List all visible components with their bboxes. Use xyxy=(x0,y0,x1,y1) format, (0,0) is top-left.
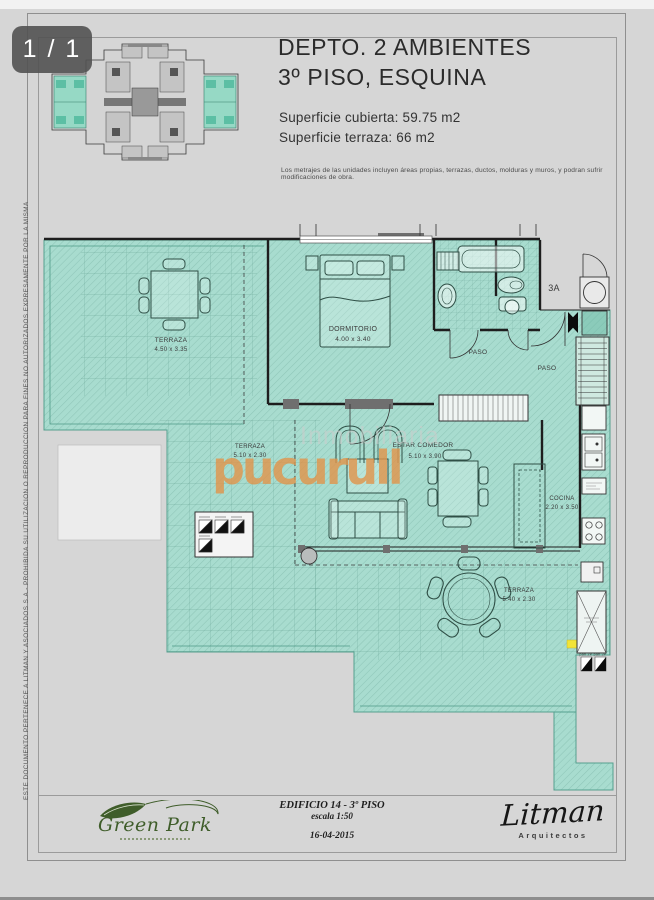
architect-signature: Litman xyxy=(500,793,605,833)
leaf-icon xyxy=(70,800,240,820)
room-label-estar-comedor: ESTAR COMEDOR xyxy=(393,442,454,449)
adjacent-slab xyxy=(58,445,161,540)
panel-marker-labels: pan 2P pan 3P xyxy=(580,653,607,657)
window-band xyxy=(300,236,432,243)
floor-plan-drawing: TERRAZA 4.50 x 3.35 DORMITORIO 4.00 x 3.… xyxy=(0,0,654,900)
room-dims-terraza-s: 5.40 x 2.30 xyxy=(503,597,536,603)
room-label-dormitorio: DORMITORIO xyxy=(329,326,378,333)
room-label-terraza-nw: TERRAZA xyxy=(155,337,188,344)
plan-sheet-title: EDIFICIO 14 - 3º PISO xyxy=(247,800,417,811)
unit-number-label: 3A xyxy=(548,283,560,293)
greenpark-tagline xyxy=(120,838,190,840)
room-label-paso-2: PASO xyxy=(538,365,557,372)
room-label-terraza-mid: TERRAZA xyxy=(235,444,265,450)
room-dims-terraza-nw: 4.50 x 3.35 xyxy=(155,347,188,353)
page-counter-badge: 1 / 1 xyxy=(12,26,92,73)
elevator xyxy=(580,277,609,308)
architect-block: Litman Arquitectos xyxy=(478,796,628,840)
greenpark-logo: Green Park xyxy=(70,800,240,840)
highlight-marker xyxy=(567,640,577,648)
floorplan-image-viewer[interactable]: DEPTO. 2 AMBIENTES 3º PISO, ESQUINA Supe… xyxy=(0,0,654,900)
room-dims-dormitorio: 4.00 x 3.40 xyxy=(335,336,371,343)
stairs xyxy=(576,337,609,405)
panel-legend xyxy=(195,512,253,557)
panel-markers xyxy=(581,657,606,671)
room-label-cocina: COCINA xyxy=(549,496,574,502)
closet-shelf xyxy=(439,395,528,421)
service-boxes xyxy=(577,562,606,653)
room-label-paso-1: PASO xyxy=(469,349,488,356)
room-label-terraza-s: TERRAZA xyxy=(504,588,534,594)
column xyxy=(301,548,317,564)
titleblock-center: EDIFICIO 14 - 3º PISO escala 1:50 16-04-… xyxy=(247,800,417,841)
room-dims-estar-comedor: 5.10 x 3.90 xyxy=(409,454,442,460)
plan-date: 16-04-2015 xyxy=(247,831,417,841)
room-dims-terraza-mid: 5.10 x 2.30 xyxy=(234,453,267,459)
room-dims-cocina: 2.20 x 3.50 xyxy=(546,505,579,511)
plan-scale: escala 1:50 xyxy=(247,811,417,821)
bed xyxy=(306,255,404,347)
